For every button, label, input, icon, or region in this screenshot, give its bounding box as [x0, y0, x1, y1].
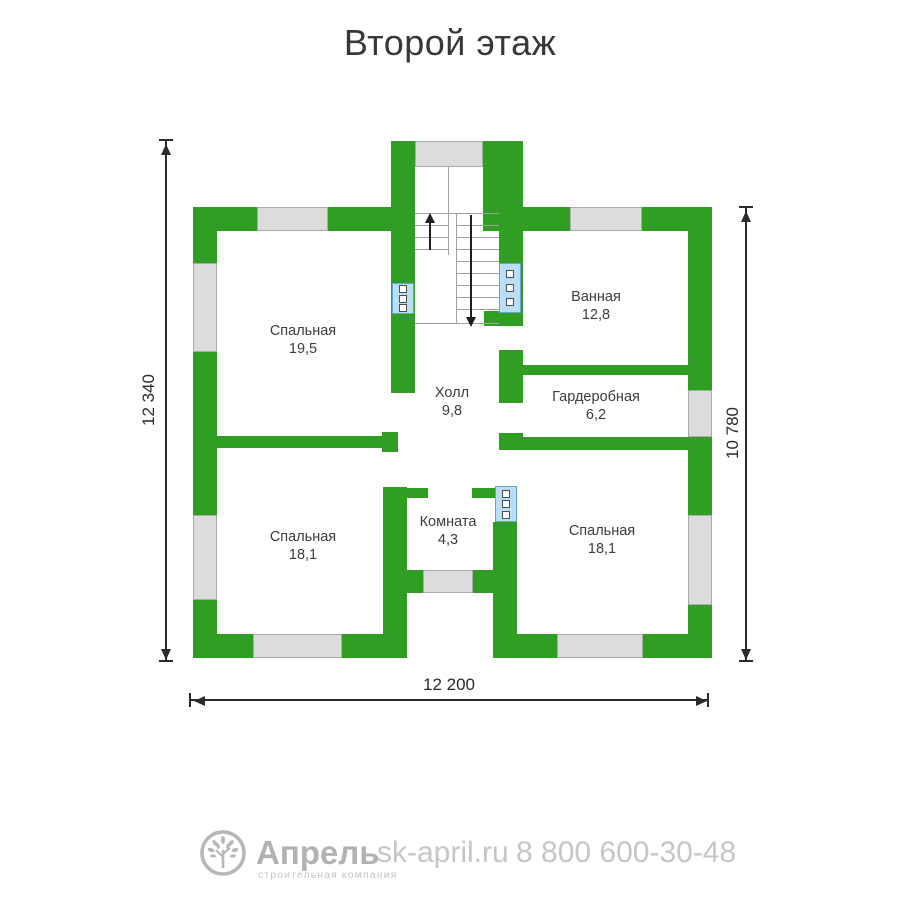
room-label-bedroom-2: Спальная18,1 — [270, 528, 336, 564]
page-title: Второй этаж — [0, 22, 900, 64]
room-label-bathroom: Ванная12,8 — [571, 288, 621, 324]
company-tagline: строительная компания — [258, 869, 397, 881]
window — [570, 207, 642, 231]
window — [557, 634, 643, 658]
window — [415, 141, 483, 167]
wall-small-room-top-left-stub — [398, 488, 428, 498]
wall-bedrooms-divider — [217, 436, 382, 448]
wall-wardrobe-bottom — [508, 437, 688, 450]
window — [423, 570, 473, 593]
wall-stair-bay-right — [483, 141, 523, 231]
phone-number: 8 800 600-30-48 — [516, 836, 736, 870]
window — [688, 515, 712, 605]
wall-stairwell-left — [391, 141, 415, 393]
company-logo-tree-icon — [199, 829, 247, 877]
window — [688, 390, 712, 437]
radiator — [495, 486, 517, 522]
dimension-value-right: 10 780 — [723, 407, 743, 459]
radiator — [392, 283, 414, 314]
website-url: sk-april.ru — [377, 836, 509, 870]
wall-bedrooms-divider-endpost — [382, 432, 398, 452]
radiator — [499, 263, 521, 313]
dimension-value-bottom: 12 200 — [423, 675, 475, 695]
room-label-bedroom-3: Спальная18,1 — [569, 522, 635, 558]
wall-small-room-left — [383, 487, 407, 658]
room-label-bedroom-1: Спальная19,5 — [270, 322, 336, 358]
window — [193, 515, 217, 600]
company-name: Апрель — [256, 834, 380, 872]
room-label-small-room: Комната4,3 — [420, 513, 477, 549]
wall-small-room-right — [493, 522, 517, 658]
wall-bathroom-bottom — [508, 365, 688, 375]
dimension-value-left: 12 340 — [139, 374, 159, 426]
window — [253, 634, 342, 658]
window — [257, 207, 328, 231]
window — [193, 263, 217, 352]
room-label-wardrobe: Гардеробная6,2 — [552, 388, 640, 424]
wall-wardrobe-left-stub-upper — [499, 350, 523, 403]
room-label-hall: Холл9,8 — [435, 384, 469, 420]
floor-plan-page: Второй этаж — [0, 0, 900, 900]
